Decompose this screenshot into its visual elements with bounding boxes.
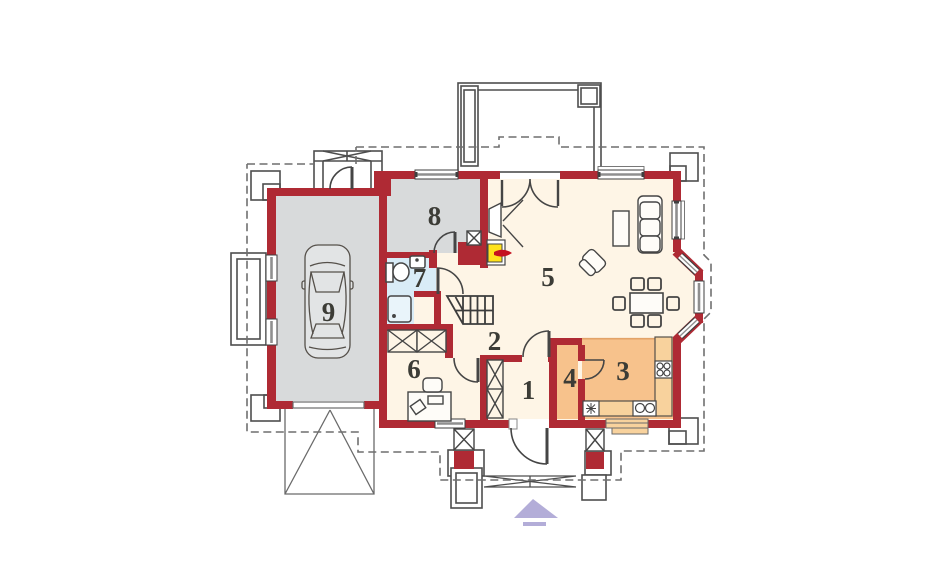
svg-text:1: 1 — [522, 375, 536, 405]
svg-text:6: 6 — [407, 354, 421, 384]
svg-text:5: 5 — [541, 262, 555, 292]
svg-text:4: 4 — [563, 363, 577, 393]
svg-text:7: 7 — [413, 263, 427, 293]
svg-text:2: 2 — [488, 326, 502, 356]
svg-text:8: 8 — [428, 201, 442, 231]
svg-text:9: 9 — [322, 297, 336, 327]
svg-text:3: 3 — [616, 356, 630, 386]
